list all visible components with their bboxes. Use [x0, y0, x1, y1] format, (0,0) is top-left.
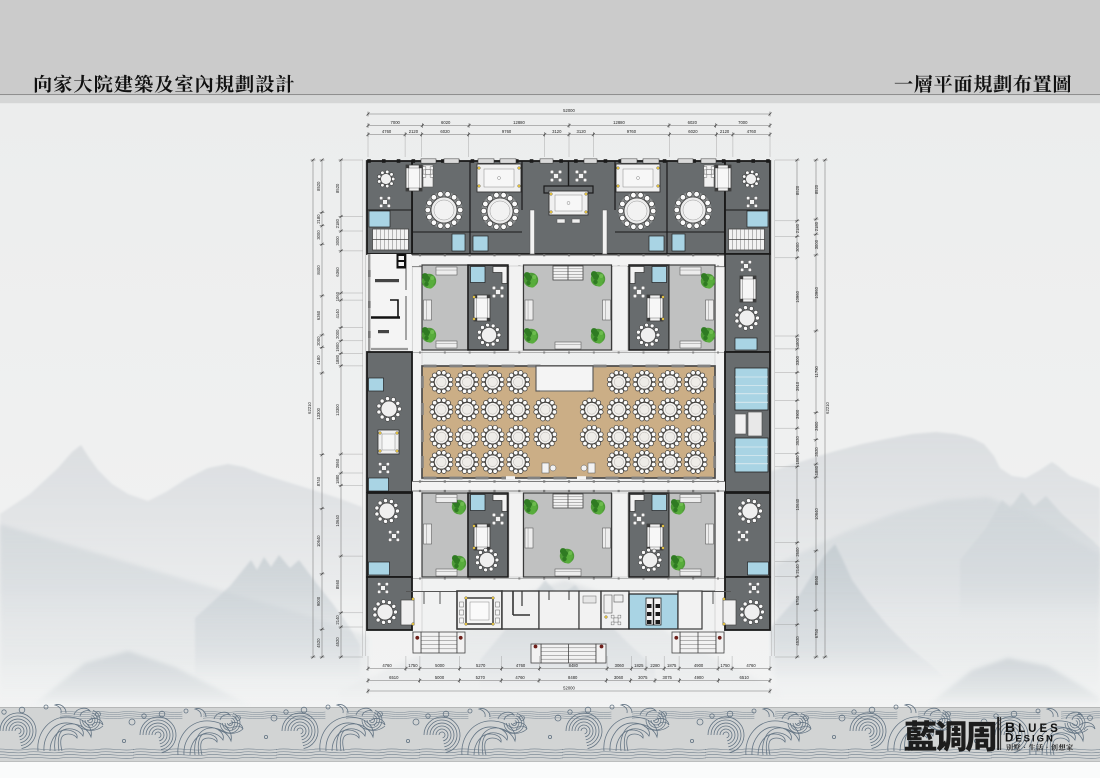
svg-text:5000: 5000 — [435, 663, 445, 668]
svg-text:DESIGN: DESIGN — [1005, 733, 1055, 745]
svg-text:8560: 8560 — [335, 579, 340, 589]
svg-text:1800: 1800 — [795, 337, 800, 347]
svg-text:6020: 6020 — [440, 129, 450, 134]
svg-text:3910: 3910 — [795, 381, 800, 391]
svg-text:3520: 3520 — [814, 447, 819, 457]
svg-text:1880: 1880 — [795, 455, 800, 465]
svg-text:52000: 52000 — [563, 685, 575, 690]
svg-text:6360: 6360 — [335, 267, 340, 277]
svg-text:8520: 8520 — [795, 185, 800, 195]
svg-text:2280: 2280 — [650, 663, 660, 668]
svg-text:4760: 4760 — [747, 129, 757, 134]
svg-text:4900: 4900 — [694, 663, 704, 668]
svg-text:10640: 10640 — [335, 514, 340, 526]
svg-text:9760: 9760 — [627, 129, 637, 134]
svg-text:2120: 2120 — [720, 129, 730, 134]
svg-text:4140: 4140 — [335, 308, 340, 318]
svg-text:8400: 8400 — [316, 265, 321, 275]
svg-text:10640: 10640 — [814, 508, 819, 520]
svg-text:10640: 10640 — [795, 498, 800, 510]
svg-text:5270: 5270 — [476, 675, 486, 680]
svg-text:4760: 4760 — [515, 675, 525, 680]
svg-text:4180: 4180 — [316, 355, 321, 365]
svg-text:1060: 1060 — [335, 291, 340, 301]
svg-text:3075: 3075 — [638, 675, 648, 680]
svg-text:6750: 6750 — [814, 628, 819, 638]
svg-text:4520: 4520 — [316, 638, 321, 648]
svg-text:6020: 6020 — [441, 120, 451, 125]
svg-text:10960: 10960 — [795, 290, 800, 302]
svg-text:1880: 1880 — [335, 474, 340, 484]
svg-text:52000: 52000 — [563, 108, 575, 113]
svg-text:62210: 62210 — [307, 402, 312, 414]
svg-text:4760: 4760 — [382, 129, 392, 134]
svg-text:1875: 1875 — [667, 663, 677, 668]
svg-text:8740: 8740 — [316, 476, 321, 486]
svg-text:4520: 4520 — [335, 637, 340, 647]
svg-text:5270: 5270 — [476, 663, 486, 668]
svg-text:6020: 6020 — [688, 129, 698, 134]
svg-text:8560: 8560 — [814, 575, 819, 585]
svg-text:9000: 9000 — [316, 596, 321, 606]
svg-text:3300: 3300 — [795, 355, 800, 365]
svg-text:62210: 62210 — [825, 402, 830, 414]
svg-text:4760: 4760 — [516, 663, 526, 668]
svg-text:6510: 6510 — [389, 675, 399, 680]
svg-text:8520: 8520 — [335, 183, 340, 193]
svg-text:4760: 4760 — [746, 663, 756, 668]
svg-text:9760: 9760 — [502, 129, 512, 134]
svg-text:4760: 4760 — [382, 663, 392, 668]
svg-text:13300: 13300 — [316, 407, 321, 419]
svg-text:2000: 2000 — [335, 329, 340, 339]
svg-text:2180: 2180 — [335, 218, 340, 228]
svg-text:12880: 12880 — [613, 120, 625, 125]
svg-text:2120: 2120 — [409, 129, 419, 134]
svg-text:3120: 3120 — [552, 129, 562, 134]
svg-text:10960: 10960 — [814, 286, 819, 298]
svg-text:11790: 11790 — [814, 365, 819, 377]
svg-text:6750: 6750 — [795, 595, 800, 605]
svg-text:4520: 4520 — [795, 636, 800, 646]
svg-text:6020: 6020 — [688, 120, 698, 125]
svg-text:4900: 4900 — [694, 675, 704, 680]
svg-text:1750: 1750 — [720, 663, 730, 668]
svg-text:3060: 3060 — [615, 663, 625, 668]
svg-text:8480: 8480 — [568, 675, 578, 680]
svg-text:8520: 8520 — [316, 181, 321, 191]
svg-text:7000: 7000 — [391, 120, 401, 125]
svg-text:2600: 2600 — [795, 547, 800, 557]
svg-text:2140: 2140 — [335, 615, 340, 625]
svg-text:10640: 10640 — [316, 535, 321, 547]
svg-text:2860: 2860 — [335, 458, 340, 468]
svg-text:12880: 12880 — [513, 120, 525, 125]
svg-text:3520: 3520 — [795, 435, 800, 445]
svg-text:8480: 8480 — [569, 663, 579, 668]
svg-text:3000: 3000 — [795, 242, 800, 252]
svg-text:2180: 2180 — [795, 223, 800, 233]
svg-text:5000: 5000 — [435, 675, 445, 680]
svg-text:3000: 3000 — [335, 236, 340, 246]
svg-text:1880: 1880 — [814, 465, 819, 475]
svg-text:1750: 1750 — [408, 663, 418, 668]
svg-text:2140: 2140 — [795, 564, 800, 574]
svg-text:3060: 3060 — [614, 675, 624, 680]
svg-text:6510: 6510 — [740, 675, 750, 680]
svg-text:3000: 3000 — [814, 239, 819, 249]
svg-text:2180: 2180 — [316, 214, 321, 224]
svg-text:6360: 6360 — [316, 310, 321, 320]
svg-text:1900: 1900 — [335, 342, 340, 352]
svg-text:7000: 7000 — [738, 120, 748, 125]
svg-text:3900: 3900 — [814, 421, 819, 431]
svg-text:2000: 2000 — [316, 336, 321, 346]
svg-text:3000: 3000 — [316, 230, 321, 240]
svg-text:13300: 13300 — [335, 404, 340, 416]
svg-text:2180: 2180 — [814, 221, 819, 231]
svg-text:3075: 3075 — [663, 675, 673, 680]
svg-text:8520: 8520 — [814, 184, 819, 194]
svg-text:1880: 1880 — [335, 354, 340, 364]
svg-text:3120: 3120 — [577, 129, 587, 134]
svg-text:1825: 1825 — [634, 663, 644, 668]
svg-text:3900: 3900 — [795, 409, 800, 419]
